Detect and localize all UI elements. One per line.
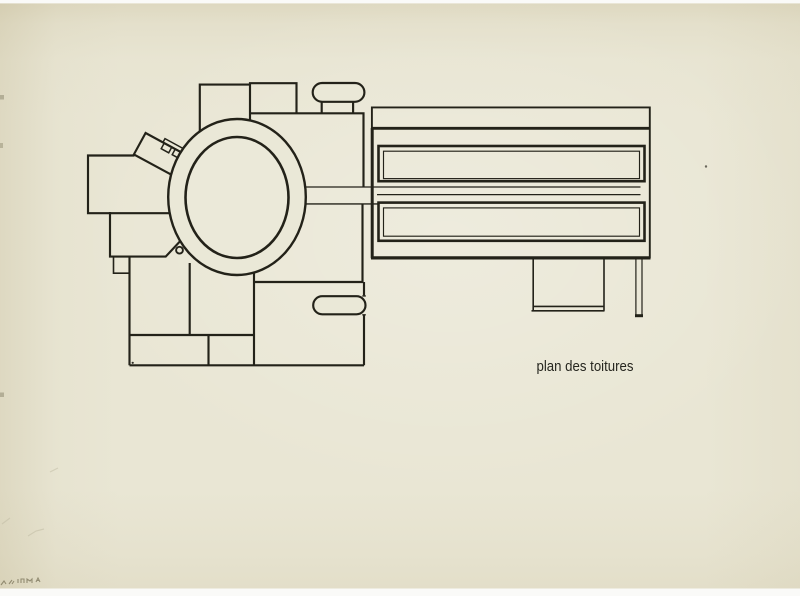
svg-text:plan des toitures: plan des toitures <box>537 358 634 375</box>
